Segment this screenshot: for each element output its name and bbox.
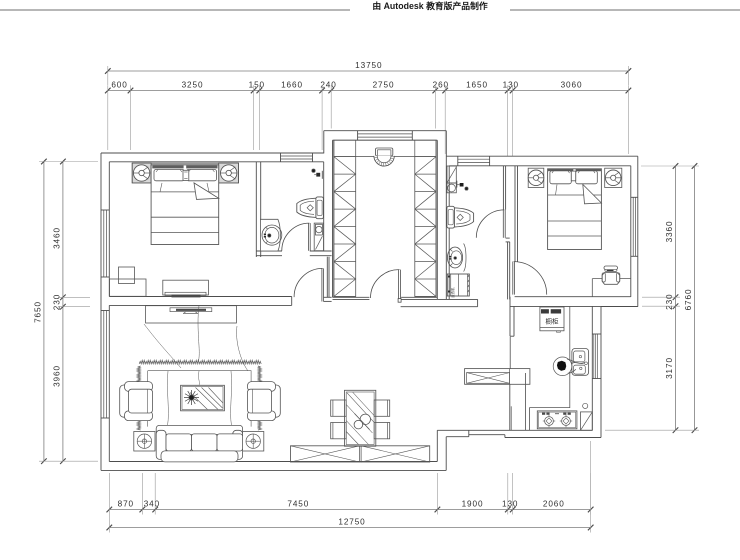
svg-text:橱柜: 橱柜	[546, 317, 560, 326]
svg-text:340: 340	[144, 499, 160, 508]
svg-text:7650: 7650	[34, 301, 43, 323]
svg-text:3060: 3060	[561, 80, 583, 89]
svg-text:3960: 3960	[53, 365, 62, 387]
svg-text:870: 870	[118, 499, 134, 508]
svg-text:130: 130	[502, 499, 518, 508]
svg-text:3170: 3170	[665, 357, 674, 379]
svg-text:1650: 1650	[466, 80, 488, 89]
svg-text:2750: 2750	[373, 80, 395, 89]
svg-text:洗衣机: 洗衣机	[450, 287, 455, 298]
svg-text:130: 130	[503, 80, 519, 89]
svg-text:150: 150	[249, 80, 265, 89]
svg-text:600: 600	[111, 80, 127, 89]
svg-text:7450: 7450	[287, 499, 309, 508]
svg-text:13750: 13750	[355, 61, 382, 70]
svg-text:230: 230	[665, 294, 674, 310]
svg-text:6760: 6760	[684, 289, 693, 311]
svg-text:12750: 12750	[338, 517, 365, 526]
svg-text:3460: 3460	[53, 227, 62, 249]
svg-text:230: 230	[53, 294, 62, 310]
svg-text:3250: 3250	[182, 80, 204, 89]
svg-text:240: 240	[320, 80, 336, 89]
svg-text:3360: 3360	[665, 221, 674, 243]
svg-text:由 Autodesk 教育版产品制作: 由 Autodesk 教育版产品制作	[372, 0, 488, 11]
svg-text:2060: 2060	[543, 499, 565, 508]
svg-text:1900: 1900	[462, 499, 484, 508]
svg-text:1660: 1660	[281, 80, 303, 89]
